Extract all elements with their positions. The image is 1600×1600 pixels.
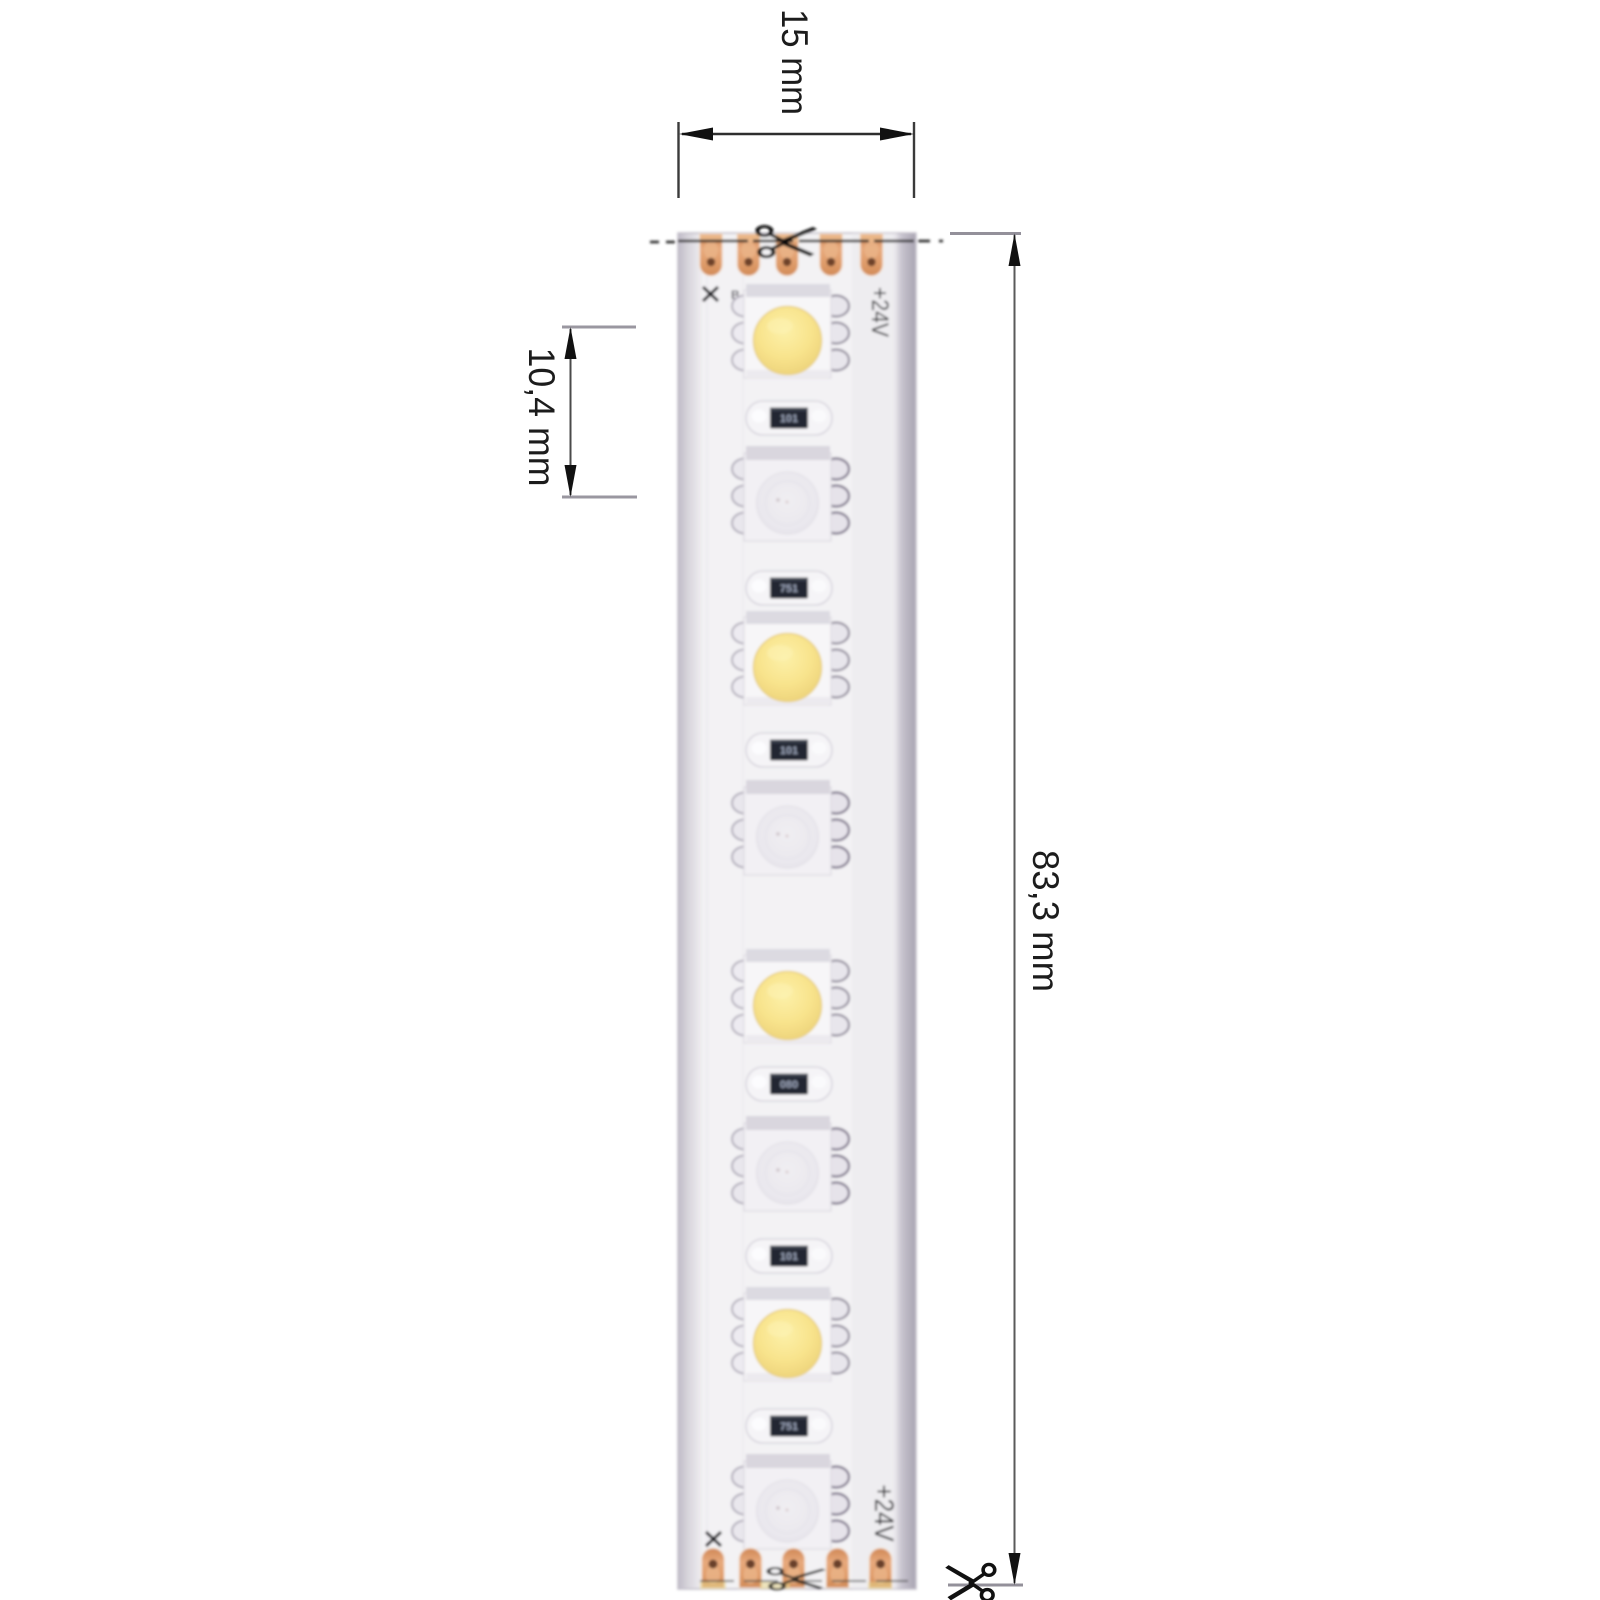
svg-text:10,4 mm: 10,4 mm — [521, 348, 562, 487]
svg-text:15 mm: 15 mm — [774, 9, 815, 115]
svg-text:+24V: +24V — [866, 287, 893, 337]
svg-text:751: 751 — [780, 583, 798, 595]
svg-text:751: 751 — [780, 1421, 798, 1433]
svg-text:101: 101 — [780, 745, 798, 757]
svg-text:101: 101 — [780, 1251, 798, 1263]
svg-text:83,3 mm: 83,3 mm — [1025, 850, 1066, 992]
svg-text:+24V: +24V — [869, 1485, 899, 1542]
svg-text:080: 080 — [780, 1079, 798, 1091]
svg-text:101: 101 — [780, 413, 798, 425]
